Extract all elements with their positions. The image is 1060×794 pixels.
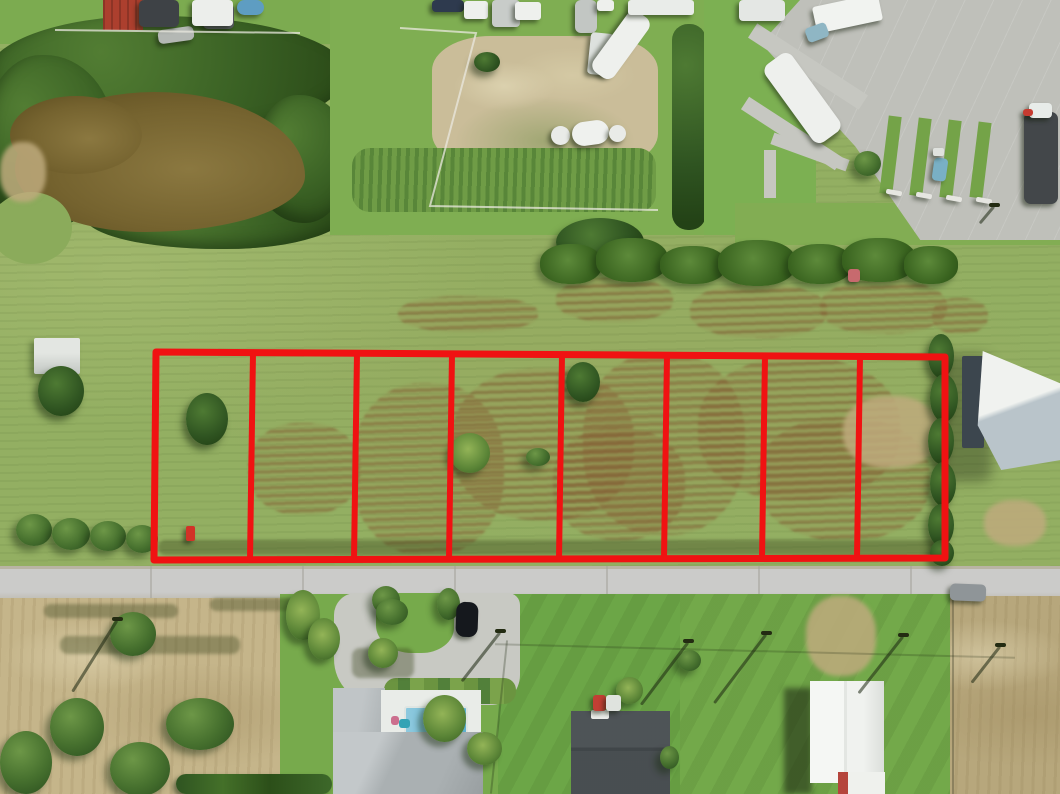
lot45-mow-scar: [553, 428, 685, 540]
street-pole-1: [495, 629, 506, 633]
drive-palm-2: [308, 618, 340, 660]
street-pole-4: [898, 633, 909, 637]
street-pole-5: [995, 643, 1006, 647]
car-on-road: [950, 583, 987, 601]
white-box-top: [597, 0, 614, 11]
white-building-annex-red: [838, 772, 848, 794]
lot1-tree: [186, 393, 228, 445]
hedgerow-3: [660, 246, 726, 284]
upper-scar-left: [398, 296, 538, 332]
right-hedge-2: [930, 374, 958, 422]
pink-marker: [848, 269, 860, 282]
hedgerow-2: [596, 238, 668, 282]
upper-scar-4: [932, 298, 988, 334]
right-hedge-1: [928, 334, 954, 378]
worn-track: [158, 540, 948, 555]
yard-palm-1: [423, 695, 466, 742]
enclosure-overgrowth: [352, 148, 656, 212]
bl-bush-4: [166, 698, 234, 750]
bottom-hedgerow: [176, 774, 332, 794]
house2-roof: [571, 711, 670, 794]
field-pole: [112, 617, 123, 621]
pool-toy-pink: [391, 716, 399, 725]
septic-tank-3: [609, 125, 626, 142]
aerial-photo: [0, 0, 1060, 794]
hedgerow-4: [718, 240, 796, 286]
roadside-bush-3: [90, 521, 126, 551]
lot-lamp: [989, 203, 1000, 207]
house1-roof-main: [333, 732, 483, 794]
upper-scar-2: [690, 284, 827, 338]
hedgerow-7: [904, 246, 958, 284]
red-truck-cab: [593, 695, 606, 711]
red-container-shed: [103, 0, 143, 30]
lot2-mow-scar: [248, 423, 360, 515]
white-roof-strip: [628, 0, 694, 15]
bl-bush-1: [50, 698, 104, 756]
white-trailer-1: [192, 0, 233, 26]
white-rv-1: [464, 1, 488, 19]
bl-bush-2: [110, 742, 170, 794]
topright-bush: [854, 151, 881, 176]
white-spot-concrete: [933, 148, 944, 156]
lot5-tree: [566, 362, 600, 402]
dryfield-track-1: [44, 604, 178, 618]
white-building: [810, 681, 884, 783]
right-hedge-3: [928, 418, 954, 464]
island-bush: [376, 599, 408, 625]
yard-palm-2: [467, 732, 502, 765]
pond-bank: [0, 142, 46, 202]
upper-scar-1: [556, 278, 673, 322]
hedge-column: [672, 24, 706, 230]
red-item-topright: [1023, 109, 1033, 116]
house2-vent: [591, 710, 609, 719]
hedgerow-1: [540, 244, 602, 284]
gray-van: [575, 0, 597, 33]
street-pole-2: [683, 639, 694, 643]
lot8-bare-spot: [843, 396, 939, 468]
gravel-drive-right: [806, 596, 876, 676]
white-rv-2: [515, 2, 541, 20]
pool-toy-teal: [399, 719, 410, 728]
survey-flag: [186, 526, 195, 541]
street-pole-3: [761, 631, 772, 635]
upper-scar-3: [820, 280, 947, 334]
lot4-bush: [526, 448, 550, 466]
shed-tree: [38, 366, 84, 416]
right-hedge-4: [930, 462, 956, 506]
walkway-2: [764, 150, 776, 198]
topright-trailer: [739, 0, 785, 21]
dryfield-track-2: [210, 598, 294, 611]
white-building-shadow: [784, 688, 812, 794]
right-hedge-6: [930, 540, 954, 566]
roadside-bush-4: [126, 525, 158, 553]
dry-field-right: [950, 596, 1060, 794]
yard-equipment-1: [139, 0, 179, 27]
parked-black-car: [455, 602, 478, 638]
roadside-bush-2: [52, 518, 90, 550]
dark-rv: [1024, 112, 1058, 204]
island-palm: [368, 638, 398, 668]
septic-tank-1: [551, 126, 570, 145]
midyard-bush: [660, 746, 679, 769]
fence-line-right: [952, 596, 954, 794]
enclosure-bush: [474, 52, 500, 72]
righthouse-bare: [984, 500, 1046, 546]
red-truck-bed: [606, 695, 621, 711]
white-building-annex: [848, 772, 885, 794]
blue-pool-top: [237, 0, 264, 15]
bl-bush-3: [0, 731, 52, 794]
lot4-palm: [450, 433, 490, 473]
dark-blue-rv: [432, 0, 464, 12]
roadside-bush-1: [16, 514, 52, 546]
